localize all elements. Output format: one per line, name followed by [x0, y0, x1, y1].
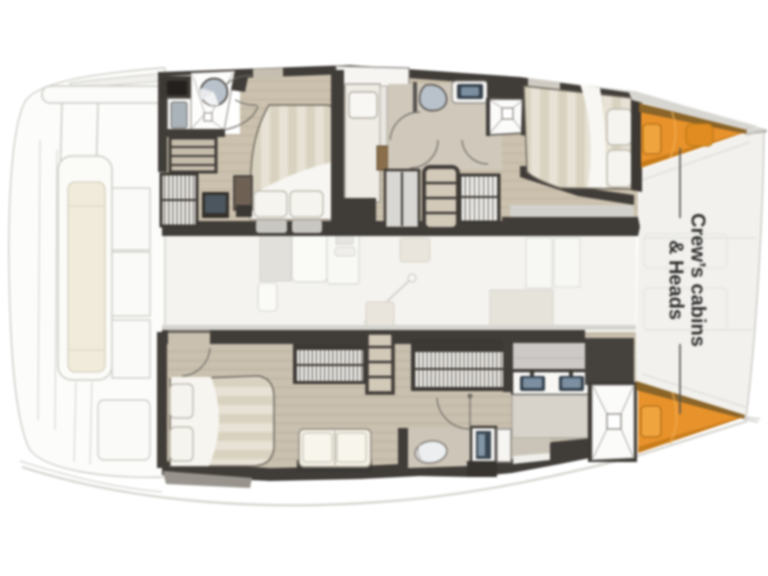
svg-text:Crew’s cabins: Crew’s cabins	[687, 213, 709, 347]
svg-text:& Heads: & Heads	[665, 240, 687, 320]
